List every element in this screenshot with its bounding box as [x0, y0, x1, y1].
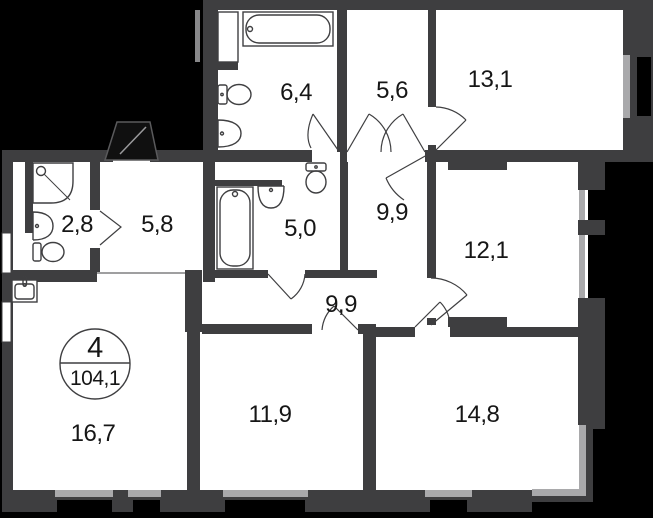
room-area-label: 12,1 — [464, 237, 509, 264]
corner-window — [579, 425, 586, 491]
room-area-label: 13,1 — [468, 66, 513, 93]
window — [579, 235, 585, 298]
window — [623, 55, 630, 118]
window — [425, 490, 472, 497]
room-area-label: 2,8 — [61, 211, 93, 238]
room-area-label: 5,8 — [141, 211, 173, 238]
room-area-label: 9,9 — [376, 199, 408, 226]
corner-window — [532, 489, 586, 496]
window — [128, 490, 161, 497]
room-area-label: 11,9 — [249, 401, 292, 428]
entrance-door-icon — [105, 122, 158, 160]
room-area-label: 16,7 — [71, 420, 116, 447]
kitchen-sink-icon — [12, 276, 37, 302]
window — [55, 490, 113, 497]
badge-room-count: 4 — [87, 332, 103, 364]
window — [579, 190, 585, 220]
badge-total-area: 104,1 — [70, 367, 120, 390]
floor-top-strip — [203, 0, 643, 162]
room-area-label: 5,6 — [376, 77, 408, 104]
room-area-label: 6,4 — [280, 79, 312, 106]
window — [223, 490, 308, 497]
floor-plan-drawing: 6,4 5,6 13,1 2,8 5,8 5,0 9,9 12,1 9,9 16… — [0, 0, 653, 518]
room-area-label: 9,9 — [325, 291, 357, 318]
stair-window — [195, 10, 200, 62]
room-area-label: 14,8 — [455, 401, 500, 428]
floor-plan: 6,4 5,6 13,1 2,8 5,8 5,0 9,9 12,1 9,9 16… — [0, 0, 653, 518]
apartment-badge: 4 104,1 — [60, 329, 130, 399]
room-area-label: 5,0 — [284, 215, 316, 242]
